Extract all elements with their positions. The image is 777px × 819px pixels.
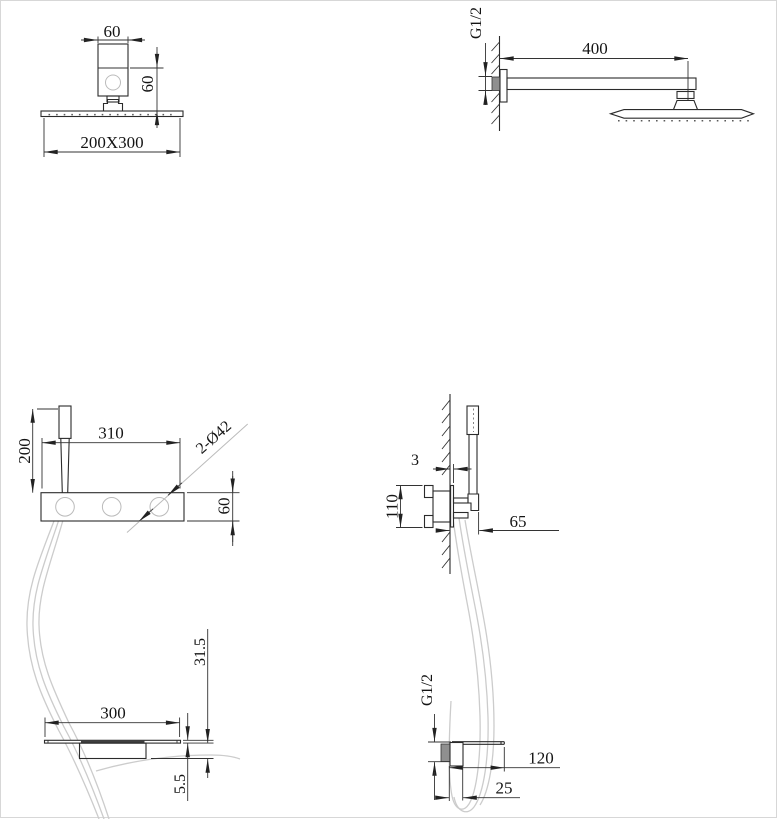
hand-shower-hose — [33, 504, 104, 819]
dim-label-plate-thickness: 3 — [411, 452, 419, 469]
dim-label-head-bracket-width: 60 — [104, 22, 121, 41]
dim-label-spout-width: 300 — [100, 704, 126, 723]
wall-hatch — [442, 400, 450, 568]
dim-label-head-drop-height: 60 — [138, 76, 157, 93]
dim-label-head-size: 200X300 — [80, 133, 143, 152]
hand-shower-head-side — [467, 406, 479, 435]
dim-label-panel-depth: 65 — [510, 512, 527, 531]
dim-label-panel-height: 60 — [215, 498, 234, 515]
spout-body-side — [450, 743, 463, 767]
head-swivel-bracket — [674, 101, 698, 110]
spout-body — [80, 743, 147, 758]
hand-shower-handle — [61, 438, 69, 493]
valve-flange — [425, 486, 434, 498]
dim-label-spout-drop: 31.5 — [192, 638, 209, 666]
view-spout-front: 300 5.5 31.5 — [45, 629, 214, 801]
view-spout-side: G1/2 120 25 — [419, 674, 560, 801]
panel-plate-side — [451, 486, 454, 528]
hand-shower-holder — [468, 494, 479, 511]
hand-shower-hose — [465, 520, 494, 805]
arm-nut — [677, 92, 694, 99]
hand-shower-hose — [96, 755, 240, 771]
view-ceiling-head-front: 60 60 200X300 — [41, 22, 183, 157]
dim-label-arm-length: 400 — [582, 39, 608, 58]
dim-label-spout-inlet-thread: G1/2 — [419, 674, 436, 706]
head-mount-cup — [104, 100, 123, 112]
spout-inlet-connector — [441, 744, 450, 762]
dim-label-knob-diameter: 2-Ø42 — [193, 418, 235, 458]
dim-label-panel-length: 310 — [98, 424, 124, 443]
shower-head-perspective — [611, 110, 754, 119]
wall-flange — [500, 70, 507, 103]
dim-label-arm-inlet-thread: G1/2 — [468, 7, 485, 39]
shower-arm — [507, 78, 696, 90]
dim-label-handshower-height: 200 — [15, 438, 34, 464]
dim-label-spout-depth: 25 — [496, 779, 513, 798]
hand-shower-hose — [39, 504, 109, 819]
view-panel-front: 200 310 60 2-Ø42 — [15, 406, 248, 819]
valve-flange — [425, 516, 434, 528]
shower-panel — [41, 493, 184, 521]
hand-shower-handle-side — [469, 435, 477, 495]
ceiling-bracket — [98, 44, 128, 96]
dim-label-plate-thickness: 5.5 — [172, 774, 189, 794]
dim-label-valve-body-height: 110 — [383, 494, 402, 519]
technical-drawing-canvas: 60 60 200X300 G1/2 400 — [0, 0, 777, 818]
holder-bar — [454, 513, 469, 519]
hand-shower-head — [59, 406, 71, 438]
shower-dimension-drawing: 60 60 200X300 G1/2 400 — [1, 1, 777, 819]
inlet-connector — [492, 77, 500, 91]
ball-joint — [106, 75, 121, 90]
dim-label-spout-length: 120 — [528, 749, 554, 768]
shower-head-plate — [41, 111, 183, 117]
in-wall-valve-body — [433, 491, 450, 522]
holder-bar — [454, 498, 469, 503]
view-shower-arm-side: G1/2 400 — [468, 7, 754, 131]
